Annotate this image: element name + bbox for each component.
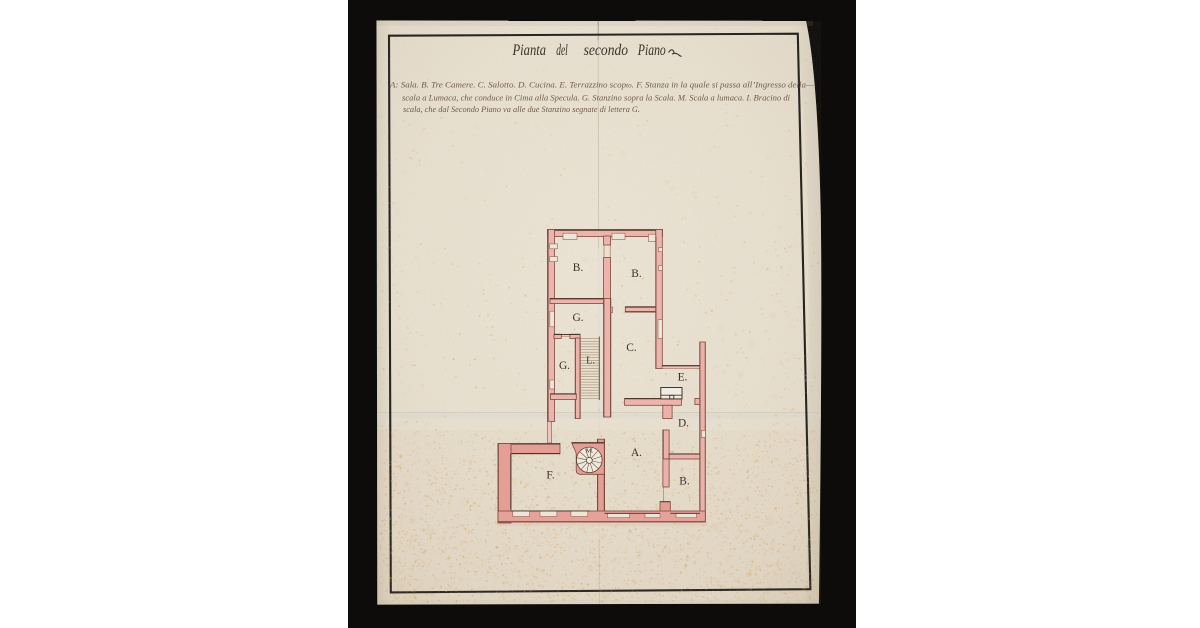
svg-text:scala a Lumaca, che conduce in: scala a Lumaca, che conduce in Cima alla… — [402, 92, 791, 102]
svg-text:L.: L. — [586, 356, 595, 367]
svg-text:G.: G. — [559, 360, 570, 372]
svg-text:E.: E. — [678, 372, 688, 384]
svg-text:Pianta: Pianta — [512, 42, 546, 59]
svg-text:B.: B. — [679, 476, 690, 488]
svg-text:del: del — [556, 42, 568, 59]
svg-text:secondo: secondo — [584, 42, 629, 59]
svg-text:B.: B. — [573, 262, 584, 274]
svg-text:G.: G. — [572, 312, 583, 324]
svg-text:scala, che dal Secondo Piano v: scala, che dal Secondo Piano va alle due… — [403, 104, 640, 114]
svg-text:M.: M. — [586, 448, 594, 455]
svg-text:C.: C. — [626, 342, 637, 354]
svg-text:Piano: Piano — [637, 42, 666, 59]
svg-text:A: Sala. B. Tre Camere. C. Sal: A: Sala. B. Tre Camere. C. Salotto. D. C… — [389, 80, 814, 90]
svg-text:D.: D. — [678, 418, 689, 430]
svg-text:B.: B. — [631, 268, 642, 280]
svg-text:F.: F. — [546, 470, 554, 482]
svg-text:A.: A. — [631, 447, 642, 459]
